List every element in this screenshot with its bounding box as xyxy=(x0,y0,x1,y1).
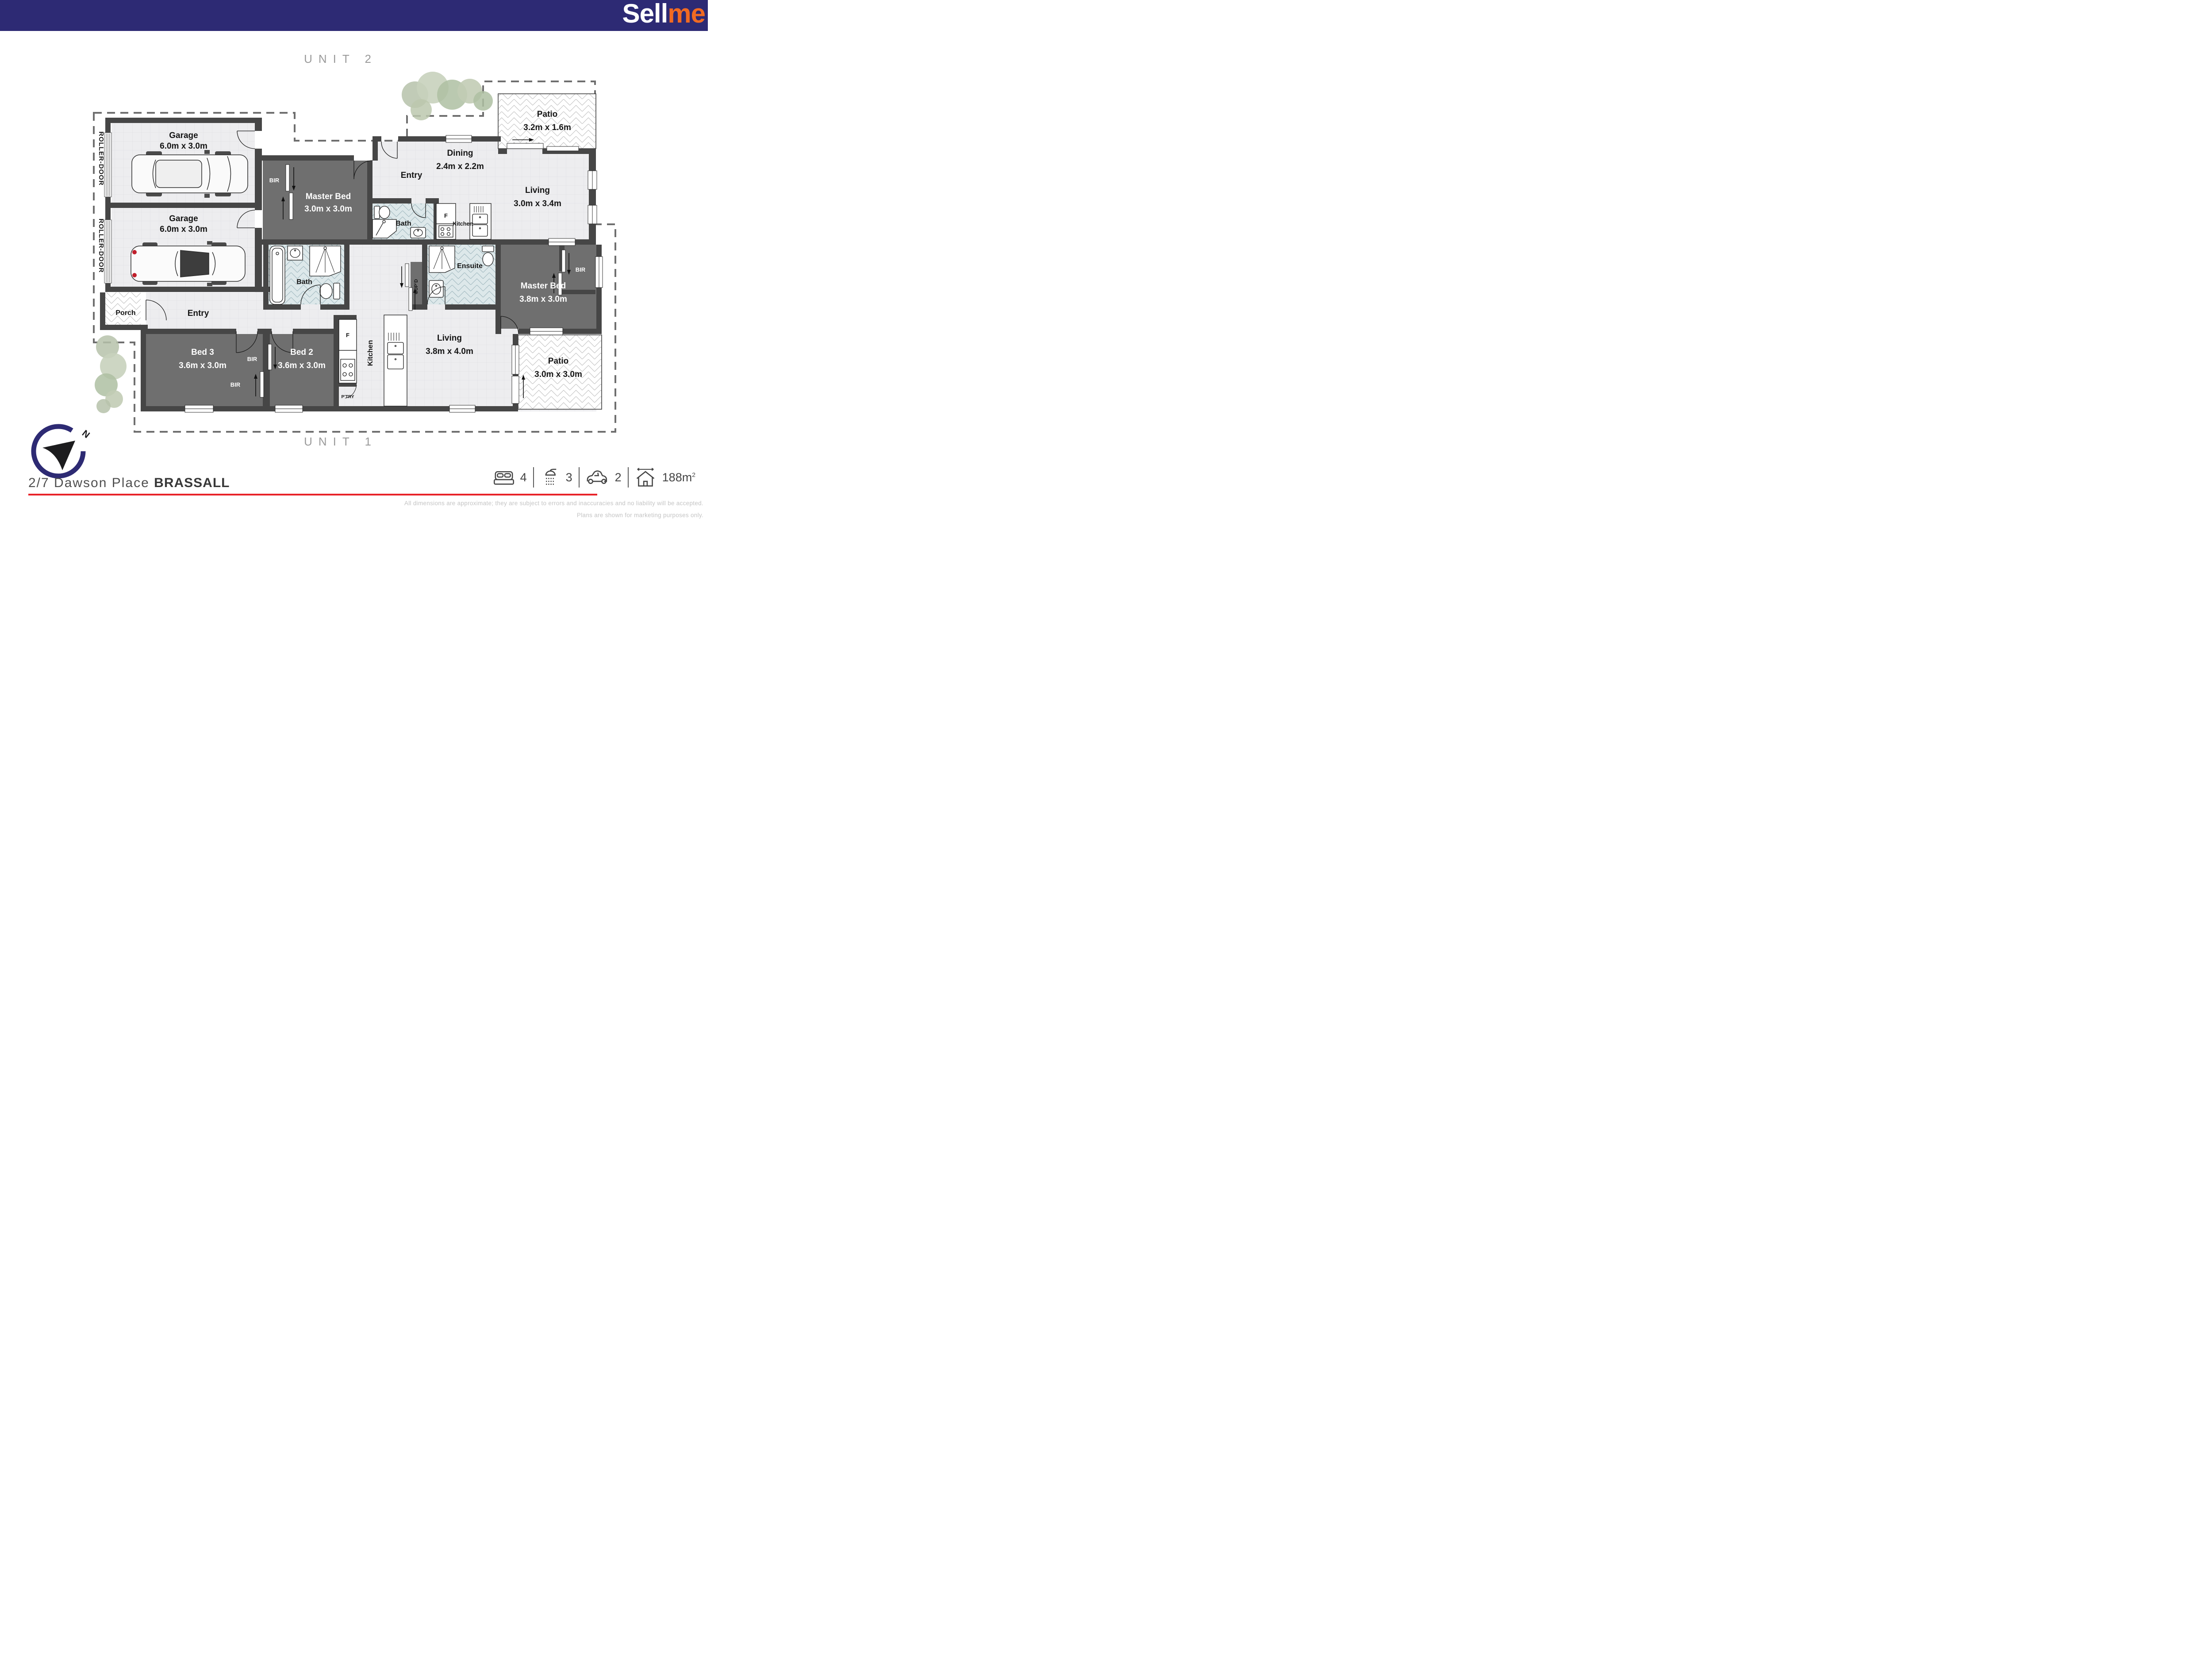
unit1-patio-label: Patio xyxy=(548,357,568,366)
compass-north-label: N xyxy=(80,428,92,440)
garage1-dims: 6.0m x 3.0m xyxy=(160,142,207,151)
garage2-dims: 6.0m x 3.0m xyxy=(160,225,207,234)
sink xyxy=(388,342,403,354)
disclaimer-line-2: Plans are shown for marketing purposes o… xyxy=(577,512,703,518)
bathtub xyxy=(272,248,283,302)
car-red-detail xyxy=(132,273,137,277)
dining-dims: 2.4m x 2.2m xyxy=(436,162,484,171)
unit2-patio-floor xyxy=(498,94,596,149)
toilet xyxy=(483,253,493,266)
toilet xyxy=(379,206,390,219)
unit2-bir-label: BIR xyxy=(269,177,280,184)
toilet xyxy=(374,206,380,219)
bed2-label: Bed 2 xyxy=(290,348,313,357)
baths-count: 3 xyxy=(566,471,572,484)
unit1-bath-label: Bath xyxy=(296,278,312,286)
car-icon xyxy=(586,468,609,487)
bed2-carpet xyxy=(270,334,334,411)
unit1-kitchen-label: Kitchen xyxy=(367,340,374,366)
bed3-carpet xyxy=(146,334,263,411)
compass-icon: N xyxy=(34,426,92,476)
bed2-dims: 3.6m x 3.0m xyxy=(278,361,326,370)
car-suv xyxy=(132,150,248,198)
cars-count: 2 xyxy=(615,471,622,484)
trees-left xyxy=(95,335,127,413)
area-value: 188m2 xyxy=(662,471,695,484)
floorplan-page: Sellme UNIT 2 UNIT 1 xyxy=(0,0,708,531)
toilet xyxy=(320,284,332,299)
roller-door-label-2: ROLLER-DOOR xyxy=(97,219,105,273)
house-area-icon xyxy=(635,468,656,487)
dining-label: Dining xyxy=(447,149,473,158)
unit1-fridge-label: F xyxy=(346,332,349,338)
unit2-patio-label: Patio xyxy=(537,110,557,119)
unit1-living-label: Living xyxy=(437,334,462,343)
unit2-living-label: Living xyxy=(525,186,550,195)
stats-separator xyxy=(628,467,629,488)
unit1-patio-dims: 3.0m x 3.0m xyxy=(534,370,582,379)
bir-b-label: BIR xyxy=(230,381,241,388)
bed3-dims: 3.6m x 3.0m xyxy=(179,361,227,370)
accent-divider xyxy=(28,494,597,495)
toilet xyxy=(334,283,340,299)
unit2-master-dims: 3.0m x 3.0m xyxy=(304,204,352,214)
stats-separator xyxy=(579,467,580,488)
unit2-master-label: Master Bed xyxy=(306,192,351,201)
unit2-fridge-label: F xyxy=(444,212,448,219)
roller-door-label-1: ROLLER-DOOR xyxy=(97,131,105,186)
property-address: 2/7 Dawson Place BRASSALL xyxy=(28,476,230,491)
unit1-master-bir-label: BIR xyxy=(576,266,586,273)
bir-a-label: BIR xyxy=(247,356,257,362)
floor-plan: N ROLLER-DOOR ROLLER-DOOR Garage 6.0m x … xyxy=(0,0,708,531)
address-street: 2/7 Dawson Place xyxy=(28,476,150,490)
disclaimer-line-1: All dimensions are approximate; they are… xyxy=(404,500,703,507)
toilet xyxy=(482,246,494,252)
trees-top xyxy=(402,72,493,120)
unit2-living-dims: 3.0m x 3.4m xyxy=(514,199,561,208)
pantry-label: P’TRY xyxy=(341,395,354,399)
unit2-bath-label: Bath xyxy=(396,220,411,227)
patio2-sill xyxy=(507,143,543,149)
sink xyxy=(472,225,488,236)
car-red-detail xyxy=(132,250,137,254)
porch-label: Porch xyxy=(115,309,135,317)
bed-icon xyxy=(494,469,514,486)
patio1-slider xyxy=(512,376,519,403)
bed3-label: Bed 3 xyxy=(191,348,214,357)
porch-floor xyxy=(105,292,141,325)
unit2-entry-label: Entry xyxy=(401,171,422,180)
sink xyxy=(388,355,403,369)
ensuite-label: Ensuite xyxy=(457,262,483,270)
stats-separator xyxy=(533,467,534,488)
unit1-entry-label: Entry xyxy=(188,309,209,318)
unit1-master-dims: 3.8m x 3.0m xyxy=(519,295,567,304)
car-sports xyxy=(131,241,245,286)
patio2-sill xyxy=(547,146,579,151)
unit2-patio-dims: 3.2m x 1.6m xyxy=(523,123,571,132)
sink xyxy=(472,214,488,224)
unit2-kitchen-label: Kitchen xyxy=(453,221,473,227)
unit1-living-dims: 3.8m x 4.0m xyxy=(426,347,473,356)
garage2-label: Garage xyxy=(169,214,198,223)
cooktop xyxy=(439,226,453,237)
cooktop xyxy=(341,359,355,380)
cupboard-label: CUP’D xyxy=(414,279,419,294)
beds-count: 4 xyxy=(520,471,527,484)
unit1-master-label: Master Bed xyxy=(521,281,566,291)
garage1-label: Garage xyxy=(169,131,198,140)
property-stats: 4 3 2 xyxy=(494,467,695,488)
shower-icon xyxy=(540,468,560,487)
address-suburb: BRASSALL xyxy=(154,476,230,490)
